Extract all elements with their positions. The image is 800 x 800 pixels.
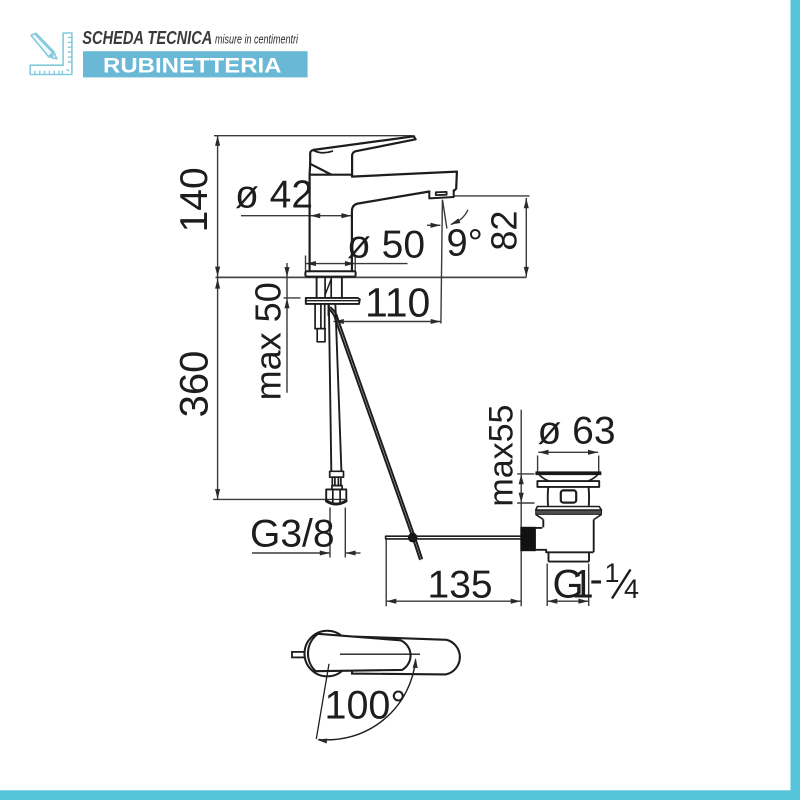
svg-text:1: 1 bbox=[605, 558, 620, 588]
svg-text:-: - bbox=[590, 558, 603, 602]
svg-text:360: 360 bbox=[173, 351, 217, 418]
svg-text:G3/8: G3/8 bbox=[250, 513, 335, 556]
svg-text:RUBINETTERIA: RUBINETTERIA bbox=[103, 54, 282, 78]
svg-text:misure in centimentri: misure in centimentri bbox=[215, 31, 299, 46]
svg-text:ø 63: ø 63 bbox=[538, 410, 616, 453]
svg-text:100°: 100° bbox=[325, 683, 407, 727]
svg-text:140: 140 bbox=[173, 167, 216, 232]
svg-text:SCHEDA TECNICA: SCHEDA TECNICA bbox=[82, 27, 212, 48]
svg-text:9°: 9° bbox=[447, 223, 483, 265]
svg-text:4: 4 bbox=[624, 574, 639, 604]
svg-text:max 50: max 50 bbox=[248, 282, 289, 400]
svg-text:82: 82 bbox=[484, 211, 525, 251]
svg-text:135: 135 bbox=[428, 564, 493, 607]
svg-text:ø 42: ø 42 bbox=[235, 174, 313, 217]
svg-text:110: 110 bbox=[365, 280, 430, 326]
svg-text:ø 50: ø 50 bbox=[347, 224, 425, 267]
svg-text:max55: max55 bbox=[483, 405, 521, 507]
